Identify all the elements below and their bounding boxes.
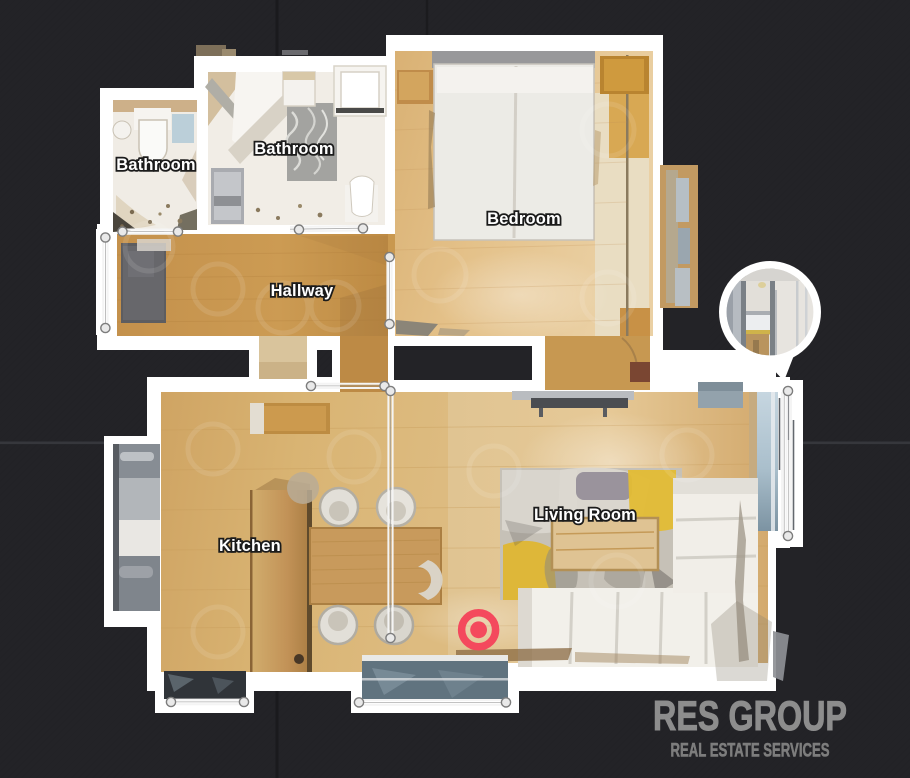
svg-text:Bedroom: Bedroom	[487, 210, 561, 228]
svg-text:Bathroom: Bathroom	[116, 156, 196, 174]
svg-text:REAL ESTATE SERVICES: REAL ESTATE SERVICES	[671, 741, 830, 762]
svg-text:Bathroom: Bathroom	[254, 140, 334, 158]
svg-text:Kitchen: Kitchen	[219, 537, 281, 555]
svg-text:RES GROUP: RES GROUP	[653, 692, 847, 739]
svg-text:Hallway: Hallway	[271, 282, 334, 300]
svg-text:Living Room: Living Room	[534, 506, 636, 524]
